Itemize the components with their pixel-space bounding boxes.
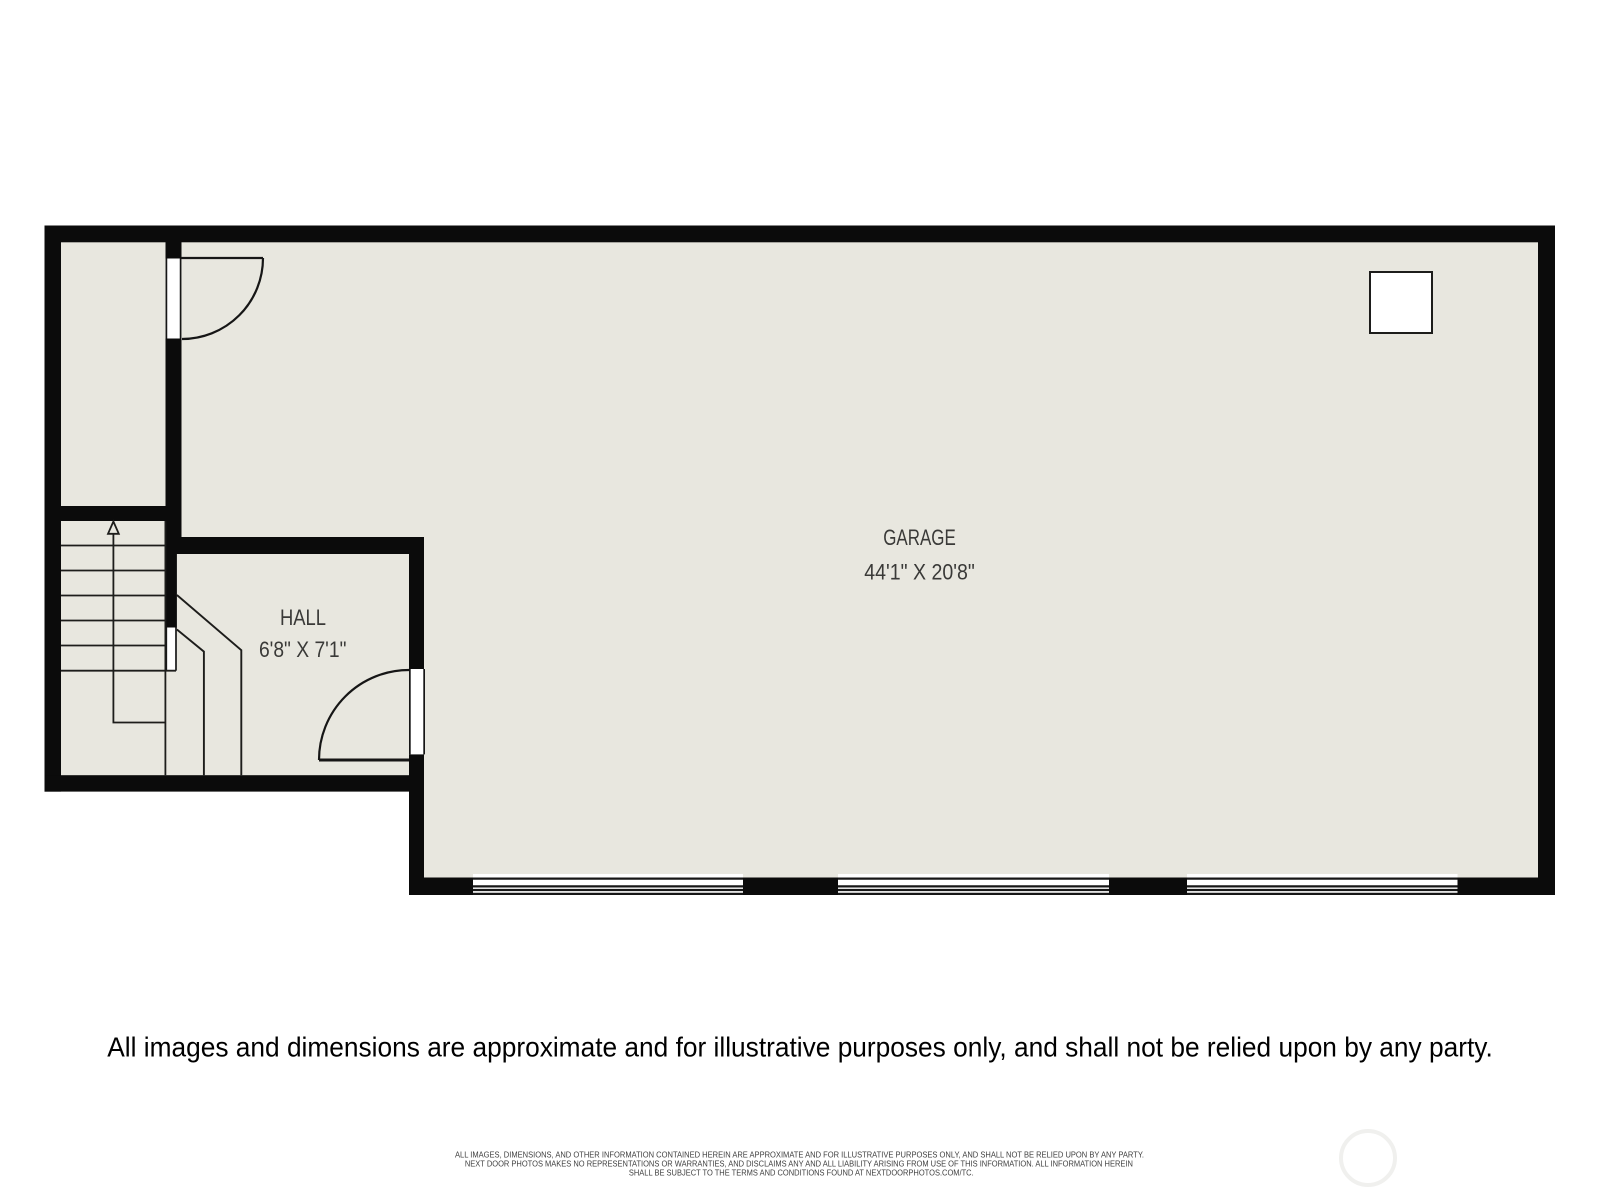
svg-text:GARAGE: GARAGE (883, 525, 956, 550)
svg-text:SHALL BE SUBJECT TO THE TERMS: SHALL BE SUBJECT TO THE TERMS AND CONDIT… (629, 1169, 974, 1178)
svg-text:All images and dimensions are: All images and dimensions are approximat… (107, 1031, 1493, 1062)
svg-text:NEXT DOOR PHOTOS MAKES NO REPR: NEXT DOOR PHOTOS MAKES NO REPRESENTATION… (465, 1159, 1133, 1168)
svg-text:HALL: HALL (280, 605, 326, 630)
svg-text:44'1" X 20'8": 44'1" X 20'8" (864, 560, 975, 585)
svg-text:6'8" X 7'1": 6'8" X 7'1" (259, 637, 347, 662)
svg-text:ALL IMAGES, DIMENSIONS, AND OT: ALL IMAGES, DIMENSIONS, AND OTHER INFORM… (455, 1150, 1144, 1159)
